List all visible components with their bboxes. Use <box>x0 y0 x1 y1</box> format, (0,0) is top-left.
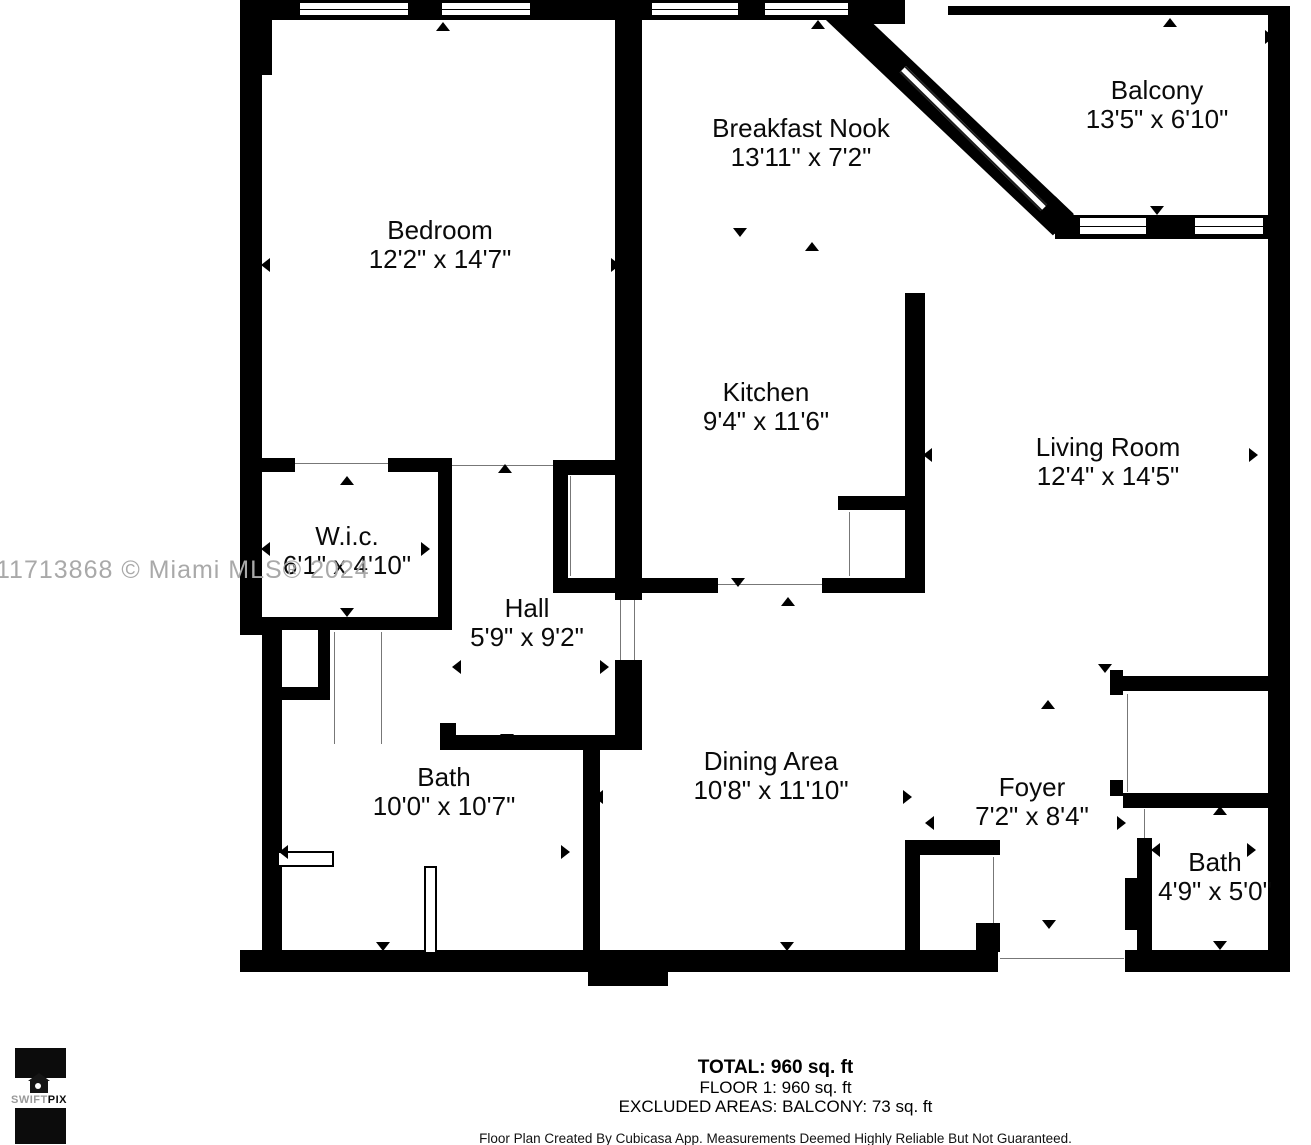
wall <box>262 458 295 472</box>
measure-arrow <box>421 542 430 556</box>
measure-arrow <box>279 845 288 859</box>
room-name: Bath <box>373 763 516 792</box>
door-opening-line <box>570 476 571 576</box>
window <box>440 1 532 17</box>
room-label-bath: Bath10'0" x 10'7" <box>373 763 516 821</box>
measure-arrow <box>780 942 794 951</box>
measure-arrow <box>731 578 745 587</box>
room-label-dining-area: Dining Area10'8" x 11'10" <box>693 747 848 805</box>
room-name: Kitchen <box>703 378 829 407</box>
wall <box>642 578 718 593</box>
measure-arrow <box>903 790 912 804</box>
room-dimensions: 13'11" x 7'2" <box>712 143 890 172</box>
room-label-breakfast-nook: Breakfast Nook13'11" x 7'2" <box>712 114 890 172</box>
room-dimensions: 12'4" x 14'5" <box>1036 462 1181 491</box>
window <box>1078 216 1148 236</box>
measure-arrow <box>261 258 270 272</box>
logo-bottom-box <box>15 1108 66 1144</box>
wall <box>262 627 282 972</box>
measure-arrow <box>261 542 270 556</box>
room-dimensions: 10'8" x 11'10" <box>693 776 848 805</box>
door-opening-line <box>1127 694 1128 792</box>
measure-arrow <box>376 942 390 951</box>
wall <box>1123 793 1290 808</box>
room-label-foyer: Foyer7'2" x 8'4" <box>975 773 1089 831</box>
measure-arrow <box>869 33 878 47</box>
window <box>298 1 410 17</box>
wall <box>1125 878 1138 930</box>
swiftpix-logo: SWIFTPIX <box>8 1048 70 1144</box>
total-area: TOTAL: 960 sq. ft <box>240 1058 1311 1078</box>
room-dimensions: 12'2" x 14'7" <box>369 245 512 274</box>
door-opening-line <box>334 632 335 744</box>
measure-arrow <box>1213 806 1227 815</box>
room-name: Balcony <box>1086 76 1229 105</box>
room-dimensions: 10'0" x 10'7" <box>373 792 516 821</box>
measure-arrow <box>611 258 620 272</box>
wall <box>440 735 640 750</box>
measure-arrow <box>1098 664 1112 673</box>
door-opening-line <box>381 632 382 744</box>
room-label-bedroom: Bedroom12'2" x 14'7" <box>369 216 512 274</box>
measure-arrow <box>1117 816 1126 830</box>
measure-arrow <box>498 464 512 473</box>
wall <box>553 578 642 593</box>
room-name: Hall <box>470 594 584 623</box>
measure-arrow <box>1265 30 1274 44</box>
measure-arrow <box>594 790 603 804</box>
room-dimensions: 7'2" x 8'4" <box>975 802 1089 831</box>
mls-watermark: 11713868 © Miami MLS® 2024 <box>0 556 370 585</box>
wall <box>976 923 1000 952</box>
room-label-hall: Hall5'9" x 9'2" <box>470 594 584 652</box>
measure-arrow <box>1213 941 1227 950</box>
door-opening-line <box>1144 809 1145 838</box>
window <box>1193 216 1265 236</box>
house-camera-icon <box>30 1080 48 1093</box>
measure-arrow <box>1041 700 1055 709</box>
measure-arrow <box>340 476 354 485</box>
window <box>763 1 850 17</box>
room-name: W.i.c. <box>283 522 411 551</box>
wall <box>438 458 452 630</box>
balcony-sliding-door <box>900 66 1058 221</box>
measure-arrow <box>340 608 354 617</box>
wall <box>948 6 1290 15</box>
door-opening-line <box>1000 958 1124 959</box>
wall <box>583 740 600 952</box>
measure-arrow <box>923 448 932 462</box>
wall <box>553 472 568 580</box>
room-dimensions: 13'5" x 6'10" <box>1086 105 1229 134</box>
measure-arrow <box>1249 448 1258 462</box>
wall <box>1110 670 1123 695</box>
wall <box>588 950 668 986</box>
wall <box>1110 780 1123 796</box>
door-opening-line <box>849 512 850 576</box>
room-name: Living Room <box>1036 433 1181 462</box>
door-opening-line <box>634 600 635 660</box>
measure-arrow <box>1150 206 1164 215</box>
measure-arrow <box>436 22 450 31</box>
logo-pix: PIX <box>48 1094 67 1106</box>
room-name: Bedroom <box>369 216 512 245</box>
room-label-balcony: Balcony13'5" x 6'10" <box>1086 76 1229 134</box>
floor-plan: Bedroom12'2" x 14'7"Breakfast Nook13'11"… <box>0 0 1311 1145</box>
room-name: Bath <box>1158 848 1272 877</box>
room-label-kitchen: Kitchen9'4" x 11'6" <box>703 378 829 436</box>
wall <box>240 20 262 635</box>
bath-fixture <box>424 866 437 954</box>
wall <box>822 578 910 593</box>
measure-arrow <box>500 734 514 743</box>
logo-wordmark: SWIFTPIX <box>8 1094 70 1107</box>
wall <box>845 0 905 24</box>
measure-arrow <box>925 816 934 830</box>
measure-arrow <box>805 242 819 251</box>
wall <box>1125 950 1290 972</box>
wall <box>1123 676 1290 691</box>
measure-arrow <box>1042 920 1056 929</box>
measure-arrow <box>781 597 795 606</box>
wall <box>240 617 452 630</box>
wall <box>905 840 920 972</box>
wall <box>905 293 925 593</box>
room-name: Foyer <box>975 773 1089 802</box>
room-dimensions: 5'9" x 9'2" <box>470 623 584 652</box>
wall <box>1137 838 1152 952</box>
door-opening-line <box>295 463 388 464</box>
wall <box>1268 6 1290 972</box>
door-opening-line <box>993 857 994 923</box>
door-opening-line <box>620 600 621 660</box>
measure-arrow <box>600 660 609 674</box>
room-dimensions: 9'4" x 11'6" <box>703 407 829 436</box>
measure-arrow <box>452 660 461 674</box>
measure-arrow <box>1163 18 1177 27</box>
wall <box>838 496 910 510</box>
room-label-bath-2: Bath4'9" x 5'0" <box>1158 848 1272 906</box>
measure-arrow <box>811 20 825 29</box>
room-label-living-room: Living Room12'4" x 14'5" <box>1036 433 1181 491</box>
window <box>650 1 740 17</box>
excluded-area: EXCLUDED AREAS: BALCONY: 73 sq. ft <box>240 1097 1311 1116</box>
area-summary: TOTAL: 960 sq. ft FLOOR 1: 960 sq. ft EX… <box>240 1058 1311 1116</box>
logo-swift: SWIFT <box>11 1094 48 1106</box>
measure-arrow <box>733 228 747 237</box>
wall <box>262 687 330 700</box>
wall <box>615 0 642 600</box>
room-name: Dining Area <box>693 747 848 776</box>
measure-arrow <box>561 845 570 859</box>
floor-area: FLOOR 1: 960 sq. ft <box>240 1078 1311 1097</box>
disclaimer-text: Floor Plan Created By Cubicasa App. Meas… <box>240 1131 1311 1145</box>
room-name: Breakfast Nook <box>712 114 890 143</box>
room-dimensions: 4'9" x 5'0" <box>1158 877 1272 906</box>
